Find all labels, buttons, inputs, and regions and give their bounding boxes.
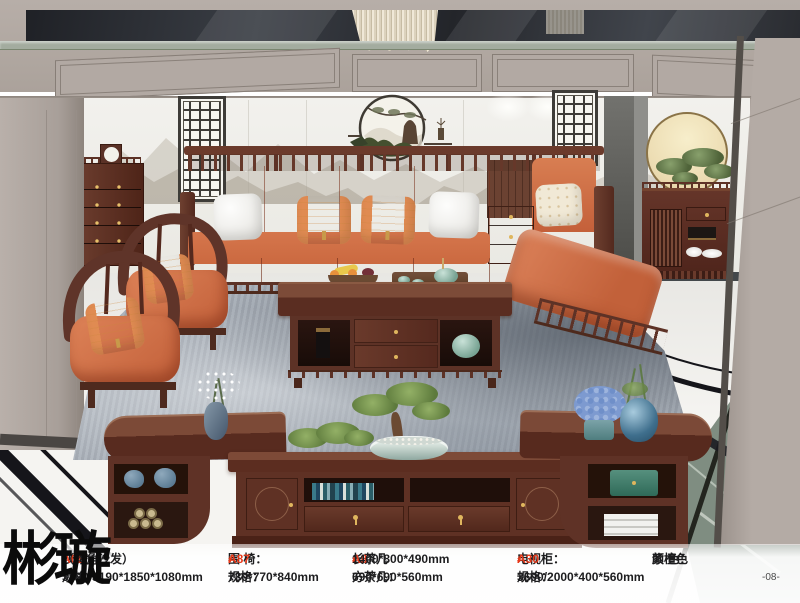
throw-pillow-striped: [297, 196, 351, 244]
coffee-table-base: [288, 370, 502, 378]
scroll-bundle: [134, 508, 145, 519]
branch-leaves: [622, 382, 648, 396]
coffee-table-top: [278, 282, 512, 316]
table-leg: [488, 378, 496, 388]
teal-box: [610, 470, 658, 496]
shelf-bottom: [588, 506, 676, 540]
ceramic-bird: [124, 470, 144, 488]
pot-pebbles: [376, 437, 442, 445]
chair-base: [80, 382, 176, 390]
decor-box: [316, 328, 330, 358]
shelf-top: [588, 464, 676, 498]
shelf-top: [114, 464, 188, 494]
cabinet-drawer: [686, 207, 726, 221]
scroll-bundle: [140, 518, 151, 529]
books: [312, 483, 374, 500]
flower-pot: [584, 420, 614, 440]
greenery-garland: [344, 430, 374, 446]
chair-leg: [210, 334, 216, 350]
spec-armchair-size-value: 730*770*840mm: [228, 569, 319, 586]
tea-box: [688, 227, 716, 240]
side-table-left-base: [108, 456, 210, 544]
tv-drawer: [408, 506, 510, 532]
table-drawer: [354, 319, 438, 343]
spec-tv-hash: #: [517, 551, 521, 568]
shelf-divider: [404, 478, 410, 502]
box-clasp: [632, 481, 636, 485]
page-number: -08-: [762, 572, 780, 583]
ceiling-panel: [352, 54, 482, 92]
drawer-pull: [353, 515, 358, 520]
mirror-reflection: [195, 10, 337, 42]
throw-pillow-striped: [360, 195, 416, 245]
ceramic-bird: [154, 468, 176, 488]
shelf-bottom: [114, 502, 188, 538]
drawer-knob: [509, 235, 513, 239]
drawer-pull: [394, 355, 398, 359]
chair-pillow: [84, 296, 146, 357]
book-stack: [604, 514, 658, 536]
gallery-rail: [642, 182, 730, 188]
throw-pillow-white: [428, 191, 480, 239]
throw-pillow-cream: [535, 183, 583, 227]
brand-watermark: 彬璇: [2, 531, 106, 589]
flower-vase: [204, 402, 228, 440]
tv-door-left: [246, 478, 298, 530]
pot-handle: [442, 258, 444, 269]
scroll-bundle: [128, 518, 139, 529]
scroll-bundle: [146, 508, 157, 519]
table-niche-left: [298, 320, 350, 366]
catalog-page: 沙 发：A68#（转角沙发） 规格：3820/3190*1850*1080mm …: [0, 0, 800, 603]
drawer-knob: [705, 213, 709, 217]
white-dish: [702, 249, 722, 258]
scroll-bundle: [152, 518, 163, 529]
tv-open-shelf: [304, 478, 510, 502]
horseshoe-armchair-front: [62, 250, 190, 422]
white-flowers: [196, 370, 240, 400]
coffee-table-body: [290, 316, 500, 370]
door-knob: [289, 503, 293, 507]
spec-armchair-hash: #: [228, 551, 232, 568]
celadon-jar: [452, 334, 480, 358]
table-leg: [294, 378, 302, 388]
spec-tv-size-value: 3600/2000*400*560mm: [517, 569, 644, 586]
blue-glass-vase: [620, 398, 658, 442]
marble-ledge: [0, 41, 800, 50]
chair-leg: [88, 390, 95, 408]
ceiling-panel: [492, 54, 634, 92]
spec-tea-square-size: 690*690*560mm: [352, 569, 443, 586]
bonsai-foliage: [704, 164, 734, 179]
side-table-right-base: [560, 456, 688, 548]
drawer-pull: [394, 330, 398, 334]
spec-color-value: 紫檀色: [652, 551, 688, 568]
panel-groove: [46, 110, 47, 440]
mirror-reflection: [445, 10, 537, 42]
drawer-pull: [458, 515, 463, 520]
bonsai-foliage: [412, 402, 450, 420]
chair-leg: [160, 390, 167, 408]
table-niche-right: [440, 320, 492, 366]
white-dish: [686, 247, 702, 257]
hydrangea-flowers: [574, 386, 626, 424]
tv-drawer: [304, 506, 404, 532]
table-clock: [100, 144, 122, 164]
slatted-door: [650, 209, 682, 267]
drawer-knobs: [95, 178, 99, 255]
door-knob: [521, 503, 525, 507]
tea-side-cabinet: [642, 188, 730, 278]
table-drawer: [354, 345, 438, 368]
tv-cabinet-body: [236, 472, 578, 536]
mirror-reflection: [655, 10, 767, 42]
drawer-knob: [509, 215, 513, 219]
chandelier-reflection: [546, 10, 584, 34]
spec-tea-long-size: 1400*800*490mm: [352, 551, 449, 568]
